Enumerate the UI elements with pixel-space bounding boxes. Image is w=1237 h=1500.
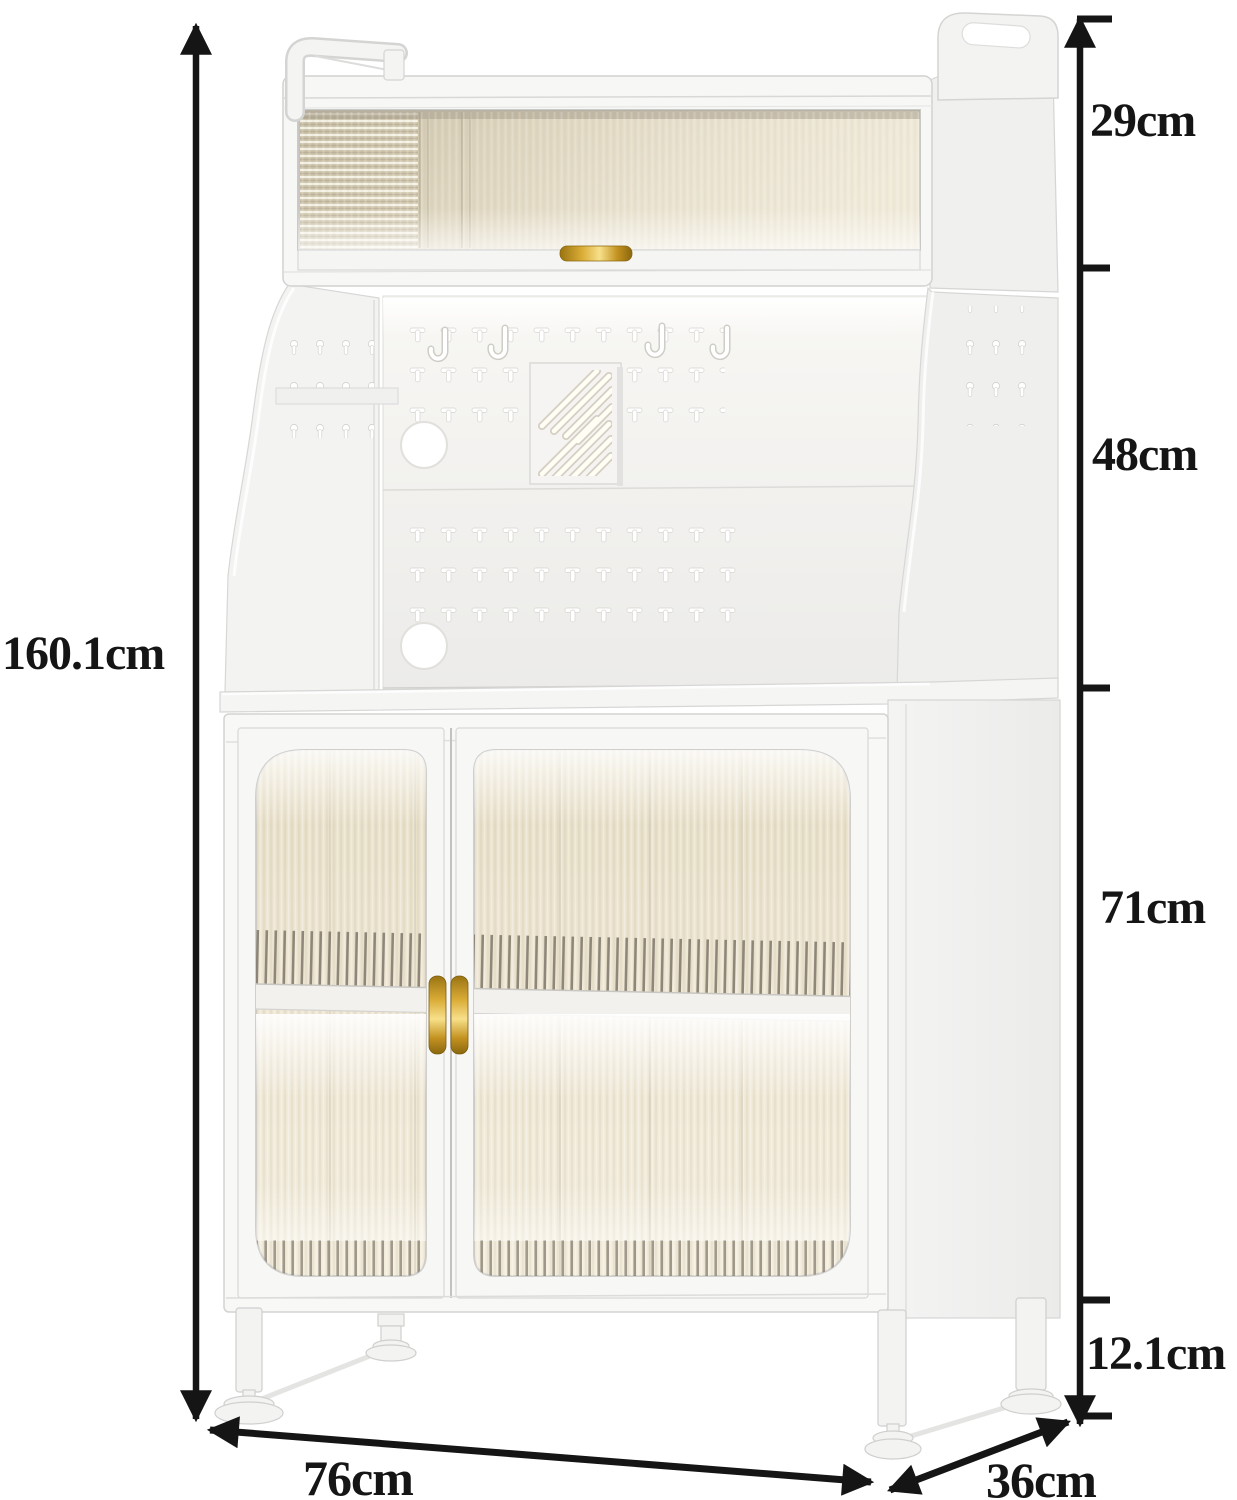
front-right-leg [865,1310,921,1459]
right-top-handle [938,13,1058,100]
cabinet-illustration [215,13,1061,1459]
front-left-leg [215,1308,283,1424]
label-cabinet-height: 71cm [1100,884,1205,932]
cabinet-legs [215,1298,1061,1459]
right-door-gold-handle [451,976,468,1054]
hutch-glass-door [298,110,920,250]
hutch-gold-handle [560,246,632,261]
vent-panel [530,363,623,489]
lower-cabinet [224,700,1060,1318]
label-leg-height: 12.1cm [1086,1330,1225,1378]
label-total-height: 160.1cm [2,630,164,678]
bottom-slot-band [256,1240,850,1276]
right-wing-peg-holes [954,306,1038,426]
back-left-leg [366,1314,416,1361]
label-width: 76cm [303,1453,413,1500]
label-pegboard-height: 48cm [1092,431,1197,479]
left-wing-panel [225,284,398,692]
pegboard-lower-slots [398,516,750,638]
cabinet-interior [249,750,857,1276]
left-door-gold-handle [429,976,446,1054]
left-wing-rail [276,388,398,404]
handle-cutout [961,22,1030,49]
diagram-canvas [0,0,1237,1500]
label-depth: 36cm [986,1455,1096,1500]
left-wing-peg-holes [282,318,374,438]
product-dimension-diagram: 160.1cm 29cm 48cm 71cm 12.1cm 76cm 36cm [0,0,1237,1500]
cable-hole-upper [401,422,447,468]
pegboard-panel [383,296,930,692]
upper-cabinet [283,76,932,286]
label-hutch-height: 29cm [1090,97,1195,145]
cable-hole-lower [401,623,447,669]
lower-side-panel [888,700,1060,1318]
